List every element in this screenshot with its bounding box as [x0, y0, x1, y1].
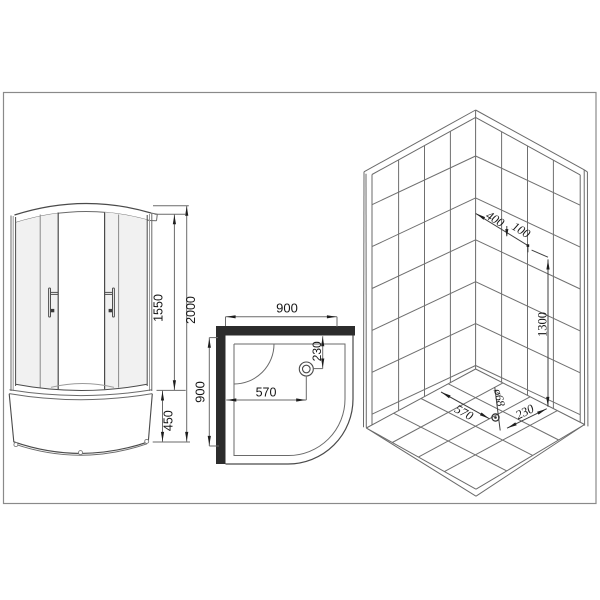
- svg-text:2000: 2000: [184, 296, 198, 324]
- svg-text:1300: 1300: [535, 312, 549, 337]
- svg-text:900: 900: [276, 301, 298, 316]
- svg-text:900: 900: [193, 381, 208, 403]
- svg-text:570: 570: [256, 386, 277, 400]
- svg-text:230: 230: [310, 341, 324, 361]
- svg-text:1550: 1550: [151, 294, 165, 322]
- svg-text:450: 450: [161, 410, 175, 431]
